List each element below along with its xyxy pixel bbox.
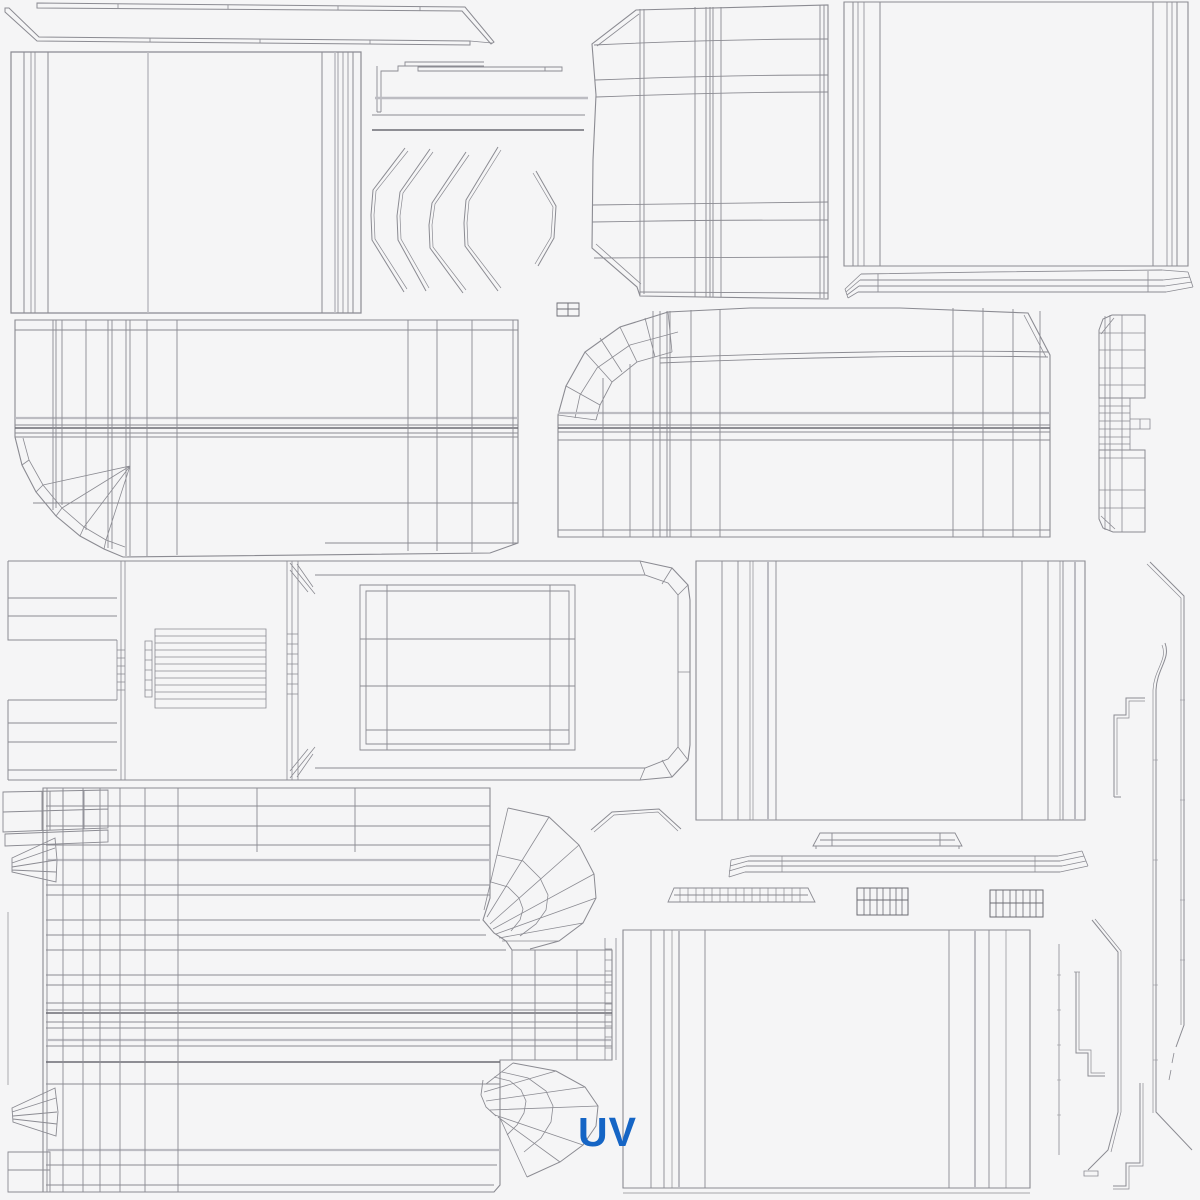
tailgate-ladder xyxy=(1099,315,1150,532)
uv-cell-marker xyxy=(557,303,579,316)
windshield-chevron xyxy=(591,809,681,832)
bumper-bar xyxy=(729,851,1088,877)
trim-lines xyxy=(372,98,588,130)
van-side-upper xyxy=(558,308,1050,537)
cab-roof-plan xyxy=(8,561,690,780)
fender-arc-strips xyxy=(371,147,556,293)
rocker-strip-right xyxy=(845,270,1193,298)
roof-rail-strip-lower xyxy=(5,8,492,45)
long-bracket xyxy=(1084,919,1121,1176)
roof-bar-small xyxy=(813,833,962,849)
bottom-panel xyxy=(623,930,1030,1193)
uv-wireframe xyxy=(3,2,1193,1193)
box-side-right xyxy=(696,561,1085,820)
door-panel-rear xyxy=(11,52,361,313)
vent-strip xyxy=(668,888,815,902)
hood-panel xyxy=(592,5,828,299)
quarter-panel-right xyxy=(844,2,1188,266)
wheel-fan-1 xyxy=(484,808,596,949)
tarp-side-panel xyxy=(3,788,616,1192)
cargo-side-panel xyxy=(15,320,518,557)
trim-step-right xyxy=(1114,698,1145,797)
step-piece-a xyxy=(1074,972,1105,1076)
uv-layout-stage: UV xyxy=(0,0,1200,1200)
uv-label: UV xyxy=(578,1109,637,1155)
trim-step-bracket xyxy=(377,62,484,112)
grid-block-2 xyxy=(990,890,1043,917)
uv-map-canvas: UV xyxy=(0,0,1200,1200)
tick-line xyxy=(1057,944,1061,1155)
grid-block-1 xyxy=(857,888,908,915)
trim-sliver xyxy=(418,67,562,71)
trim-long-right-2 xyxy=(1153,643,1192,1150)
